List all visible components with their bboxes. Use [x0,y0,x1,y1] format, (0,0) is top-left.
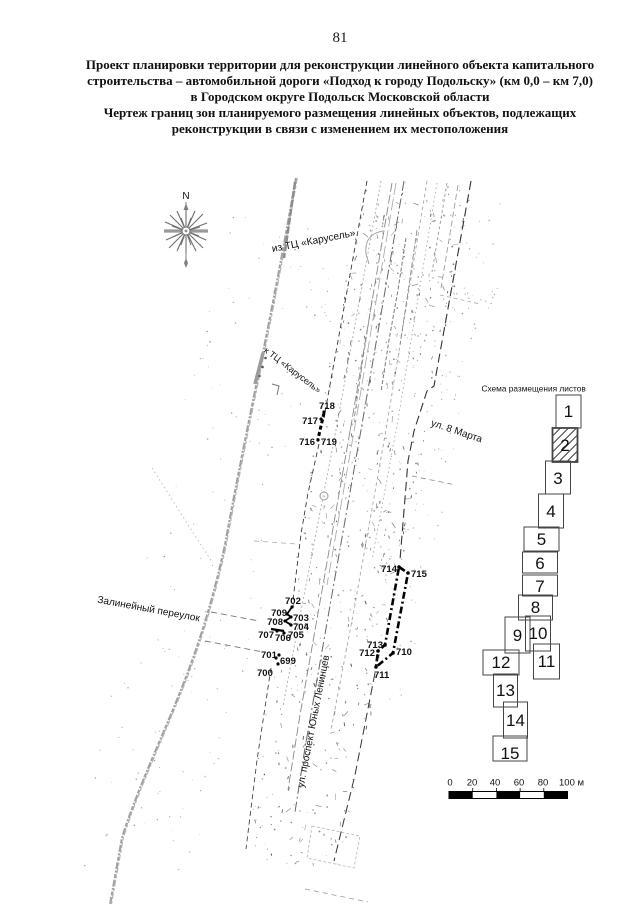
svg-text:10: 10 [529,624,548,643]
svg-text:702: 702 [285,596,301,607]
svg-text:8: 8 [531,598,540,617]
svg-text:12: 12 [492,653,511,672]
svg-text:708: 708 [267,617,283,628]
svg-text:712: 712 [359,648,375,659]
svg-text:40: 40 [490,778,501,789]
svg-text:1: 1 [564,402,573,421]
svg-text:710: 710 [396,647,412,658]
svg-text:2: 2 [560,436,569,455]
svg-text:7: 7 [535,577,544,596]
svg-text:14: 14 [506,711,525,730]
svg-text:3: 3 [553,469,562,488]
svg-text:719: 719 [321,437,337,448]
svg-text:711: 711 [374,670,390,681]
svg-text:707: 707 [258,630,274,641]
svg-text:ул. проспект Юных Ленинцев: ул. проспект Юных Ленинцев [296,654,332,788]
svg-text:из ТЦ «Карусель»: из ТЦ «Карусель» [271,228,357,255]
svg-text:100 м: 100 м [559,778,584,789]
svg-text:699: 699 [280,656,296,667]
svg-text:15: 15 [501,744,520,763]
svg-text:N: N [182,191,189,202]
svg-text:718: 718 [319,401,335,412]
svg-text:Схема размещения листов: Схема размещения листов [482,384,587,394]
svg-text:13: 13 [496,681,515,700]
svg-text:705: 705 [288,630,305,641]
svg-text:20: 20 [467,778,478,789]
svg-text:6: 6 [535,554,544,573]
svg-text:0: 0 [447,778,452,789]
svg-text:715: 715 [411,569,428,580]
svg-text:700: 700 [257,668,273,679]
svg-text:5: 5 [537,530,546,549]
svg-text:716: 716 [299,437,315,448]
svg-text:714: 714 [381,564,398,575]
svg-text:701: 701 [261,650,278,661]
svg-text:11: 11 [538,652,556,671]
svg-text:80: 80 [538,778,549,789]
svg-text:ул. 8 Марта: ул. 8 Марта [430,418,484,445]
svg-text:717: 717 [302,416,318,427]
svg-text:к ТЦ «Карусель»: к ТЦ «Карусель» [262,345,323,395]
svg-text:9: 9 [513,626,522,645]
svg-text:4: 4 [546,502,555,521]
svg-text:Залинейный переулок: Залинейный переулок [96,595,201,625]
svg-text:60: 60 [514,778,525,789]
